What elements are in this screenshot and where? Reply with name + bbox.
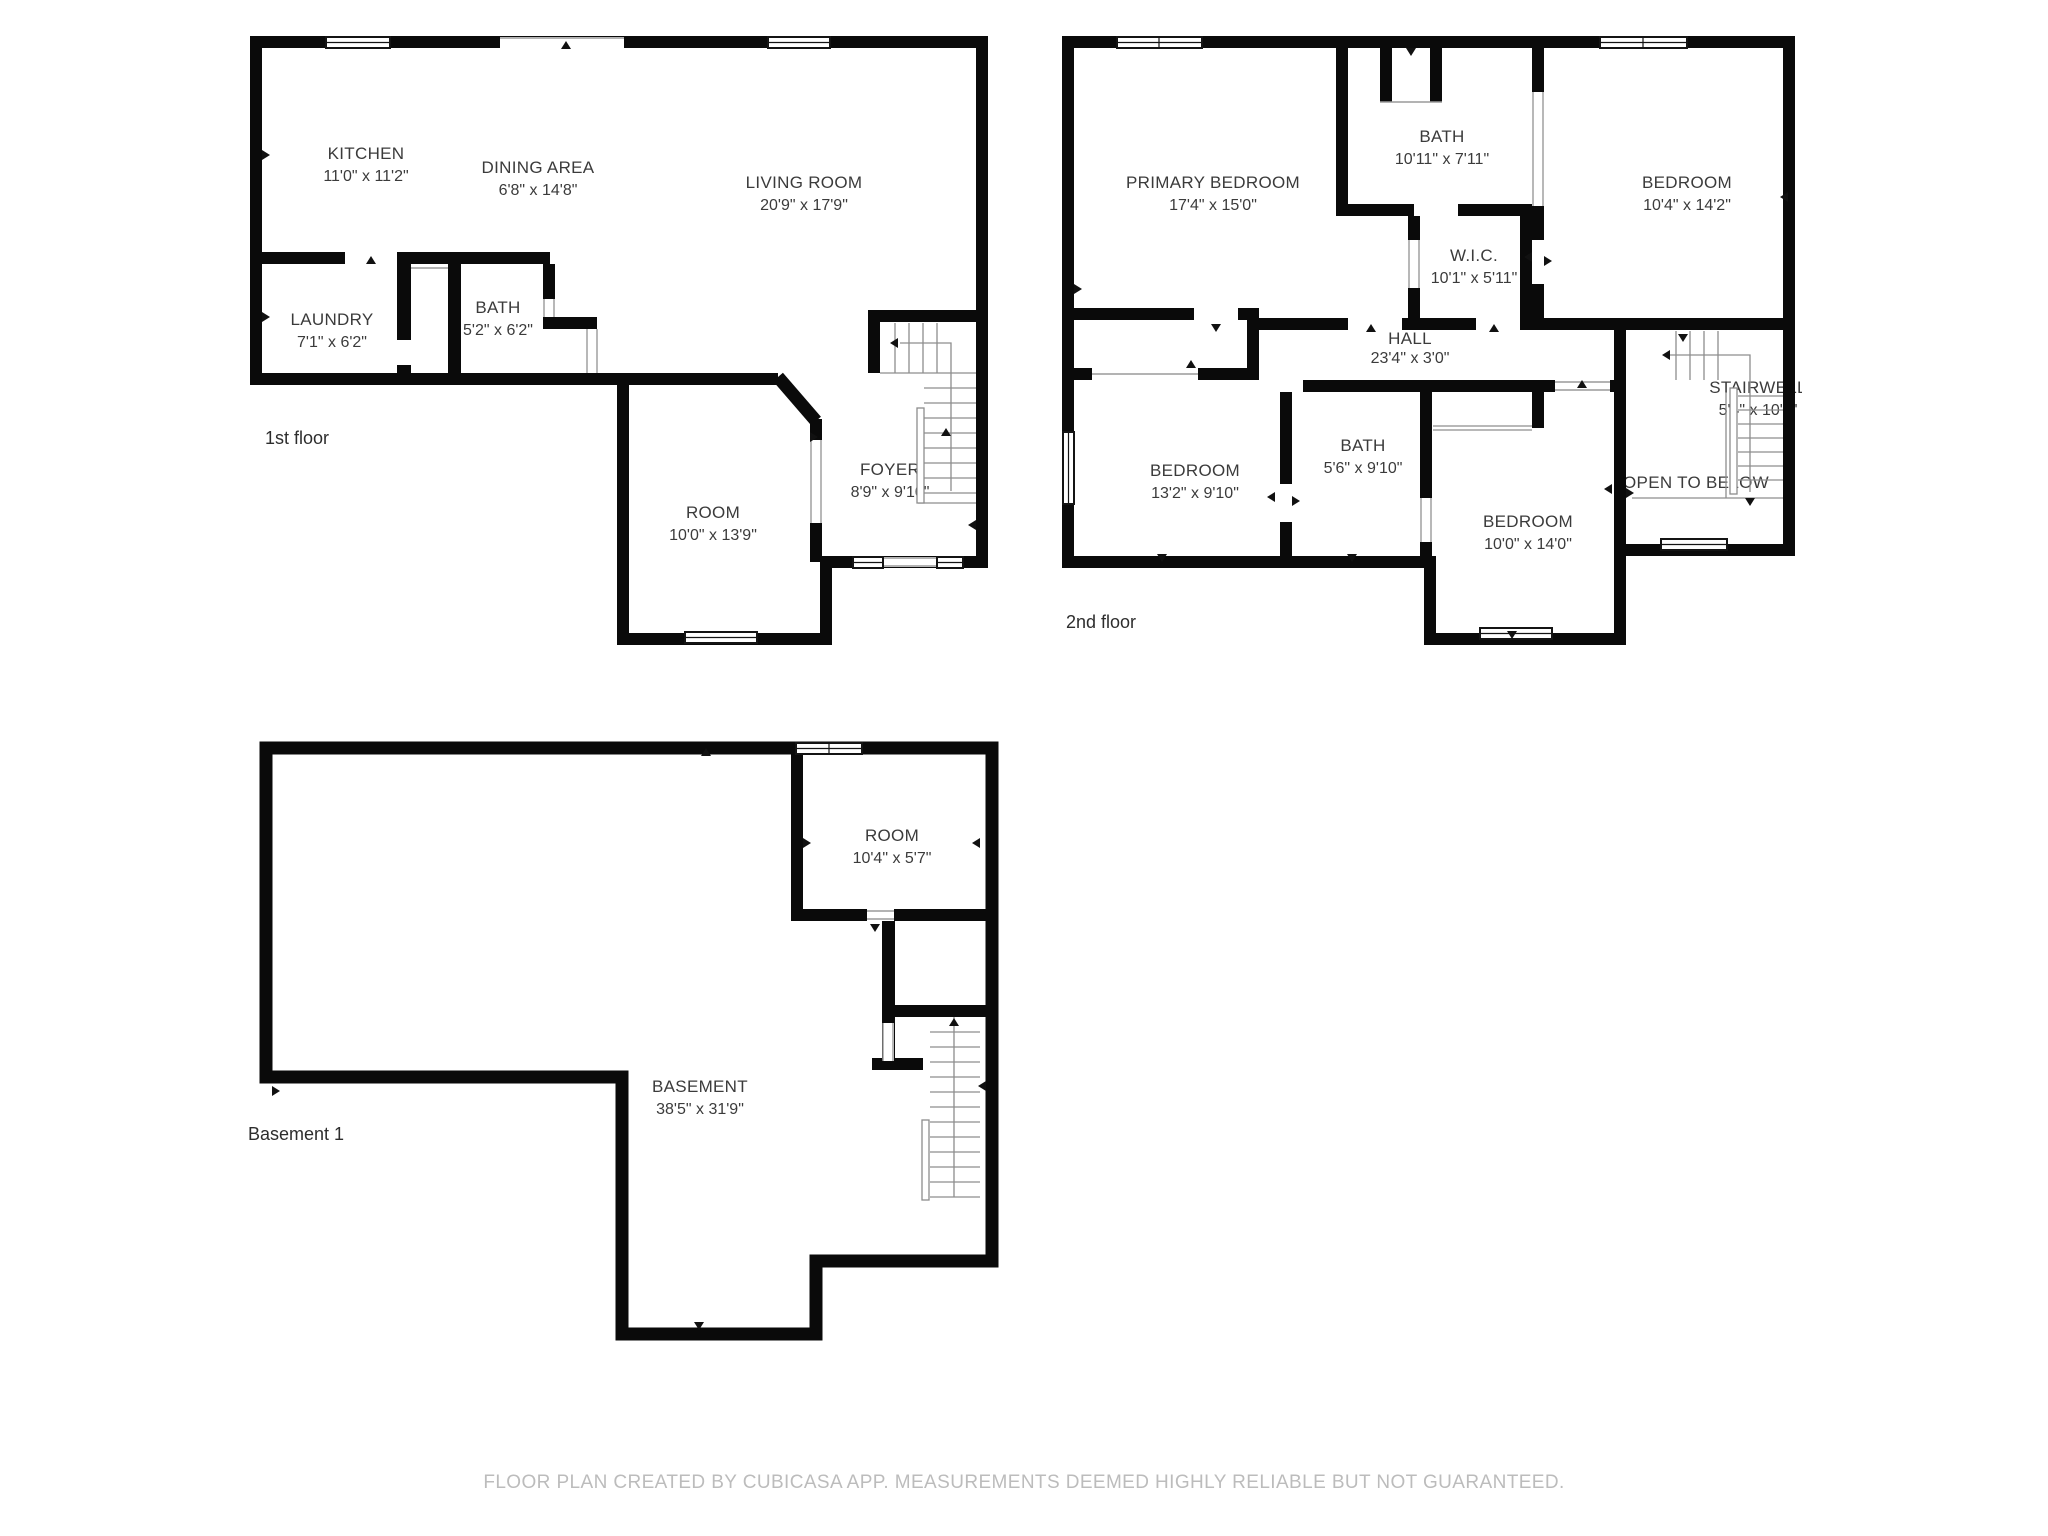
door-arrow-icon — [1366, 324, 1376, 332]
room-label: ROOM — [865, 826, 919, 845]
stairs-icon — [922, 1017, 980, 1200]
window-icon — [1600, 37, 1687, 48]
door-arrow-icon — [272, 1086, 280, 1096]
room-label: W.I.C. — [1450, 246, 1498, 265]
room-dims: 10'1" x 5'11" — [1431, 270, 1518, 287]
door-arrow-icon — [941, 428, 951, 436]
door-arrow-icon — [1186, 360, 1196, 368]
room-dims: 5'6" x 9'10" — [1324, 460, 1403, 477]
window-icon — [796, 743, 862, 754]
window-icons — [796, 743, 862, 754]
first-floor-label: 1st floor — [265, 428, 329, 449]
basement-floor-plan: ROOM 10'4" x 5'7" BASEMENT 38'5" x 31'9" — [254, 736, 1014, 1346]
room-label: ROOM — [686, 503, 740, 522]
first-floor-plan: KITCHEN 11'0" x 11'2" DINING AREA 6'8" x… — [250, 36, 994, 650]
room-dims: 17'4" x 15'0" — [1169, 197, 1257, 214]
door-arrow-icon — [949, 1018, 959, 1026]
door-arrow-icon — [1267, 492, 1275, 502]
door-arrow-icon — [890, 338, 898, 348]
door-arrow-icon — [1662, 350, 1670, 360]
door-arrow-icon — [1577, 380, 1587, 388]
stairs-icon — [1433, 331, 1783, 498]
room-label: FOYER — [860, 460, 920, 479]
window-icon — [1117, 37, 1202, 48]
door-arrow-icon — [1292, 496, 1300, 506]
room-dims: 7'1" x 6'2" — [297, 334, 367, 351]
room-label: DINING AREA — [482, 158, 595, 177]
window-icon — [1063, 432, 1074, 504]
room-label: LIVING ROOM — [746, 173, 863, 192]
room-dims: 10'4" x 14'2" — [1643, 197, 1731, 214]
room-dims: 5'2" x 6'2" — [463, 322, 533, 339]
room-dims: 10'11" x 7'11" — [1395, 151, 1489, 168]
floor-plan-page: KITCHEN 11'0" x 11'2" DINING AREA 6'8" x… — [0, 0, 2048, 1536]
room-label: BEDROOM — [1150, 461, 1240, 480]
room-dims: 11'0" x 11'2" — [323, 168, 408, 185]
door-arrow-icon — [1678, 334, 1688, 342]
room-label: KITCHEN — [328, 144, 405, 163]
room-label: LAUNDRY — [290, 310, 373, 329]
room-dims: 10'0" x 13'9" — [669, 527, 757, 544]
room-label: BATH — [1340, 436, 1385, 455]
door-arrow-icon — [262, 150, 270, 160]
room-dims: 38'5" x 31'9" — [656, 1101, 744, 1118]
door-arrow-icon — [366, 256, 376, 264]
room-dims: 23'4" x 3'0" — [1371, 350, 1450, 367]
first-floor-room-labels: KITCHEN 11'0" x 11'2" DINING AREA 6'8" x… — [290, 144, 929, 544]
room-dims: 10'4" x 5'7" — [853, 850, 932, 867]
window-icon — [685, 632, 757, 643]
room-label: BEDROOM — [1483, 512, 1573, 531]
room-label: HALL — [1388, 329, 1432, 348]
second-floor-room-labels: PRIMARY BEDROOM 17'4" x 15'0" BATH 10'11… — [1126, 127, 1802, 553]
room-dims: 13'2" x 9'10" — [1151, 485, 1239, 502]
door-arrow-icon — [1406, 48, 1416, 56]
window-icons — [326, 37, 963, 643]
room-label: PRIMARY BEDROOM — [1126, 173, 1300, 192]
window-icon — [326, 37, 390, 48]
room-dims: 10'0" x 14'0" — [1484, 536, 1572, 553]
window-icon — [768, 37, 830, 48]
door-arrow-icon — [1745, 498, 1755, 506]
door-arrow-icon — [870, 924, 880, 932]
room-label: BATH — [1419, 127, 1464, 146]
second-floor-label: 2nd floor — [1066, 612, 1136, 633]
door-arrow-icon — [978, 1081, 986, 1091]
room-label: OPEN TO BELOW — [1623, 473, 1769, 492]
room-dims: 20'9" x 17'9" — [760, 197, 848, 214]
window-icon — [853, 557, 883, 568]
window-icon — [1480, 628, 1552, 639]
door-arrow-icon — [1489, 324, 1499, 332]
door-arrow-icon — [262, 312, 270, 322]
door-arrow-icon — [1604, 484, 1612, 494]
window-icon — [937, 557, 963, 568]
room-label: BASEMENT — [652, 1077, 748, 1096]
door-arrow-icon — [1211, 324, 1221, 332]
door-arrow-icon — [1074, 284, 1082, 294]
door-arrow-icon — [803, 838, 811, 848]
cubicasa-disclaimer: FLOOR PLAN CREATED BY CUBICASA APP. MEAS… — [0, 1472, 2048, 1494]
basement-floor-label: Basement 1 — [248, 1124, 344, 1145]
room-label: BEDROOM — [1642, 173, 1732, 192]
door-arrow-icon — [1544, 256, 1552, 266]
window-icon — [1661, 539, 1727, 550]
room-label: BATH — [475, 298, 520, 317]
room-dims: 6'8" x 14'8" — [499, 182, 578, 199]
door-arrow-icon — [972, 838, 980, 848]
door-arrow-icon — [968, 520, 976, 530]
second-floor-plan: PRIMARY BEDROOM 17'4" x 15'0" BATH 10'11… — [1062, 36, 1802, 651]
